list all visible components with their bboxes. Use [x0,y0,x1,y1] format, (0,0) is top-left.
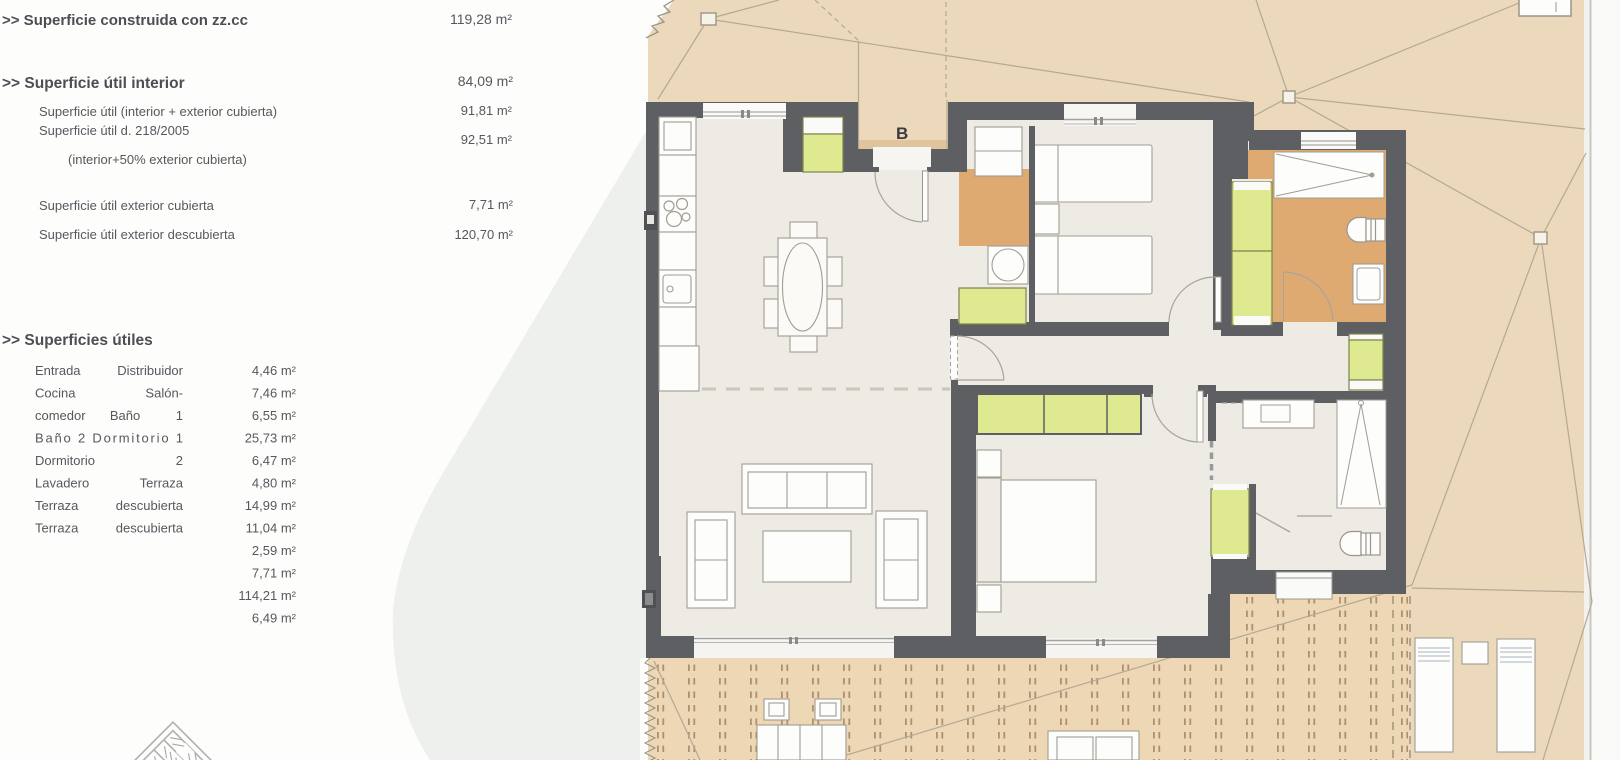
svg-text:4,46 m²: 4,46 m² [252,363,297,378]
svg-text:2: 2 [176,453,183,468]
svg-text:7,71 m²: 7,71 m² [252,566,297,581]
svg-text:4,80 m²: 4,80 m² [252,476,297,491]
svg-text:119,28 m²: 119,28 m² [450,11,512,27]
svg-text:(interior+50% exterior cubiert: (interior+50% exterior cubierta) [68,152,247,167]
svg-text:Baño 2 Dormitorio 1: Baño 2 Dormitorio 1 [35,431,183,446]
svg-text:descubierta: descubierta [116,521,184,536]
svg-text:92,51 m²: 92,51 m² [461,132,513,147]
svg-text:comedor: comedor [35,408,86,423]
svg-text:11,04 m²: 11,04 m² [246,521,297,536]
svg-text:Terraza: Terraza [140,476,184,491]
svg-text:114,21 m²: 114,21 m² [238,588,296,603]
svg-text:Dormitorio: Dormitorio [35,453,95,468]
svg-text:1: 1 [176,408,183,423]
svg-text:Baño: Baño [110,408,140,423]
svg-text:84,09 m²: 84,09 m² [458,73,514,89]
svg-text:B: B [896,124,908,143]
svg-text:>> Superficie construida con z: >> Superficie construida con zz.cc [2,12,248,29]
svg-text:91,81 m²: 91,81 m² [461,103,513,118]
svg-text:7,71 m²: 7,71 m² [469,197,514,212]
svg-text:Terraza: Terraza [35,498,79,513]
svg-text:Superficie útil (interior + ex: Superficie útil (interior + exterior cub… [39,104,277,119]
svg-text:120,70 m²: 120,70 m² [454,227,513,242]
svg-text:Superficie útil exterior descu: Superficie útil exterior descubierta [39,227,236,242]
svg-text:Superficie útil d. 218/2005: Superficie útil d. 218/2005 [39,123,189,138]
svg-text:Distribuidor: Distribuidor [117,363,183,378]
svg-text:Salón-: Salón- [145,386,183,401]
svg-text:descubierta: descubierta [116,498,184,513]
svg-text:7,46 m²: 7,46 m² [252,386,297,401]
svg-text:25,73 m²: 25,73 m² [245,431,297,446]
svg-text:6,49 m²: 6,49 m² [252,611,297,626]
svg-text:>> Superficie útil interior: >> Superficie útil interior [2,75,185,92]
svg-text:2,59 m²: 2,59 m² [252,543,297,558]
svg-text:Cocina: Cocina [35,386,76,401]
svg-text:Superficie útil exterior cubie: Superficie útil exterior cubierta [39,198,215,213]
svg-text:Lavadero: Lavadero [35,476,89,491]
svg-text:>> Superficies útiles: >> Superficies útiles [2,332,153,349]
svg-text:Entrada: Entrada [35,363,81,378]
svg-text:Terraza: Terraza [35,521,79,536]
svg-text:6,47 m²: 6,47 m² [252,453,297,468]
svg-text:6,55 m²: 6,55 m² [252,408,297,423]
svg-text:14,99 m²: 14,99 m² [245,498,297,513]
